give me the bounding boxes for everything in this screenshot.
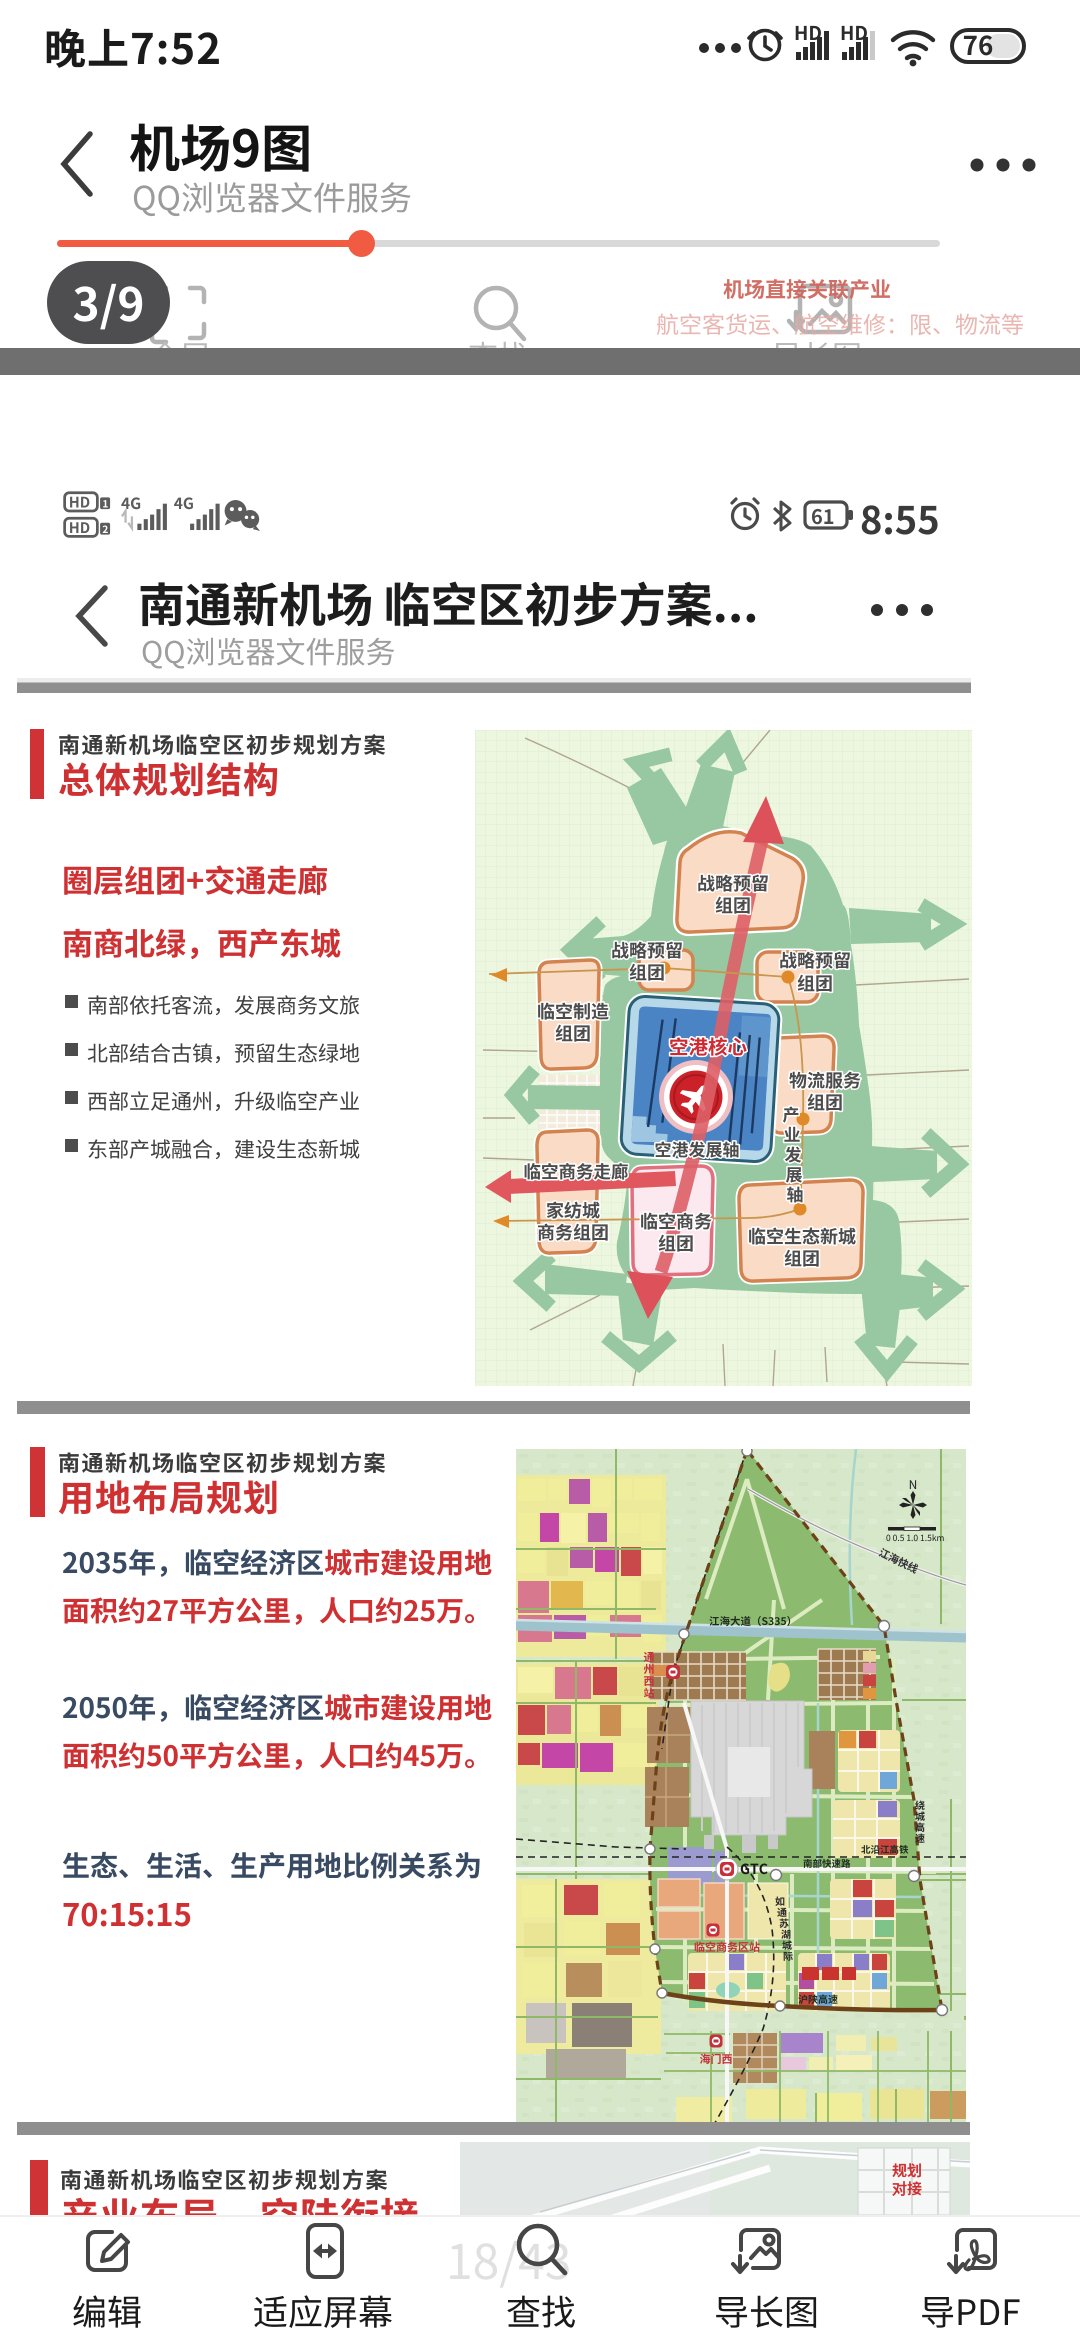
svg-text:轴: 轴 — [787, 1181, 804, 1206]
svg-text:空港核心: 空港核心 — [669, 1031, 748, 1060]
svg-text:N: N — [909, 1476, 918, 1493]
svg-text:HD: HD — [69, 517, 90, 538]
svg-text:北沿江高铁: 北沿江高铁 — [861, 1842, 909, 1856]
svg-text:组团: 组团 — [629, 959, 665, 985]
svg-text:组团: 组团 — [555, 1020, 591, 1046]
svg-text:2: 2 — [102, 521, 108, 536]
svg-text:临空商务走廊: 临空商务走廊 — [524, 1159, 629, 1184]
svg-text:江海大道（S335）: 江海大道（S335） — [709, 1614, 797, 1629]
svg-text:组团: 组团 — [658, 1230, 694, 1256]
svg-text:沪陕高速: 沪陕高速 — [798, 1991, 838, 2006]
svg-text:0 0.5 1.0 1.5km: 0 0.5 1.0 1.5km — [886, 1532, 945, 1544]
svg-text:GTC: GTC — [740, 1859, 768, 1879]
svg-text:61: 61 — [811, 501, 835, 530]
svg-text:海门西: 海门西 — [700, 2051, 733, 2067]
svg-text:站: 站 — [644, 1685, 655, 1701]
svg-text:空港发展轴: 空港发展轴 — [655, 1136, 740, 1161]
svg-text:商务组团: 商务组团 — [537, 1219, 609, 1245]
svg-text:组团: 组团 — [715, 892, 751, 918]
svg-text:南部快速路: 南部快速路 — [803, 1856, 851, 1870]
svg-text:对接: 对接 — [892, 2178, 922, 2199]
svg-text:组团: 组团 — [797, 970, 833, 996]
svg-text:4G: 4G — [121, 492, 141, 514]
svg-text:际: 际 — [783, 1948, 793, 1963]
svg-text:HD: HD — [69, 491, 90, 512]
svg-text:4G: 4G — [174, 492, 194, 514]
svg-text:速: 速 — [915, 1830, 925, 1845]
svg-text:组团: 组团 — [784, 1245, 820, 1271]
svg-text:1: 1 — [102, 495, 108, 510]
svg-text:76: 76 — [963, 26, 994, 63]
svg-text:组团: 组团 — [807, 1089, 843, 1115]
svg-text:临空商务区站: 临空商务区站 — [694, 1939, 760, 1955]
